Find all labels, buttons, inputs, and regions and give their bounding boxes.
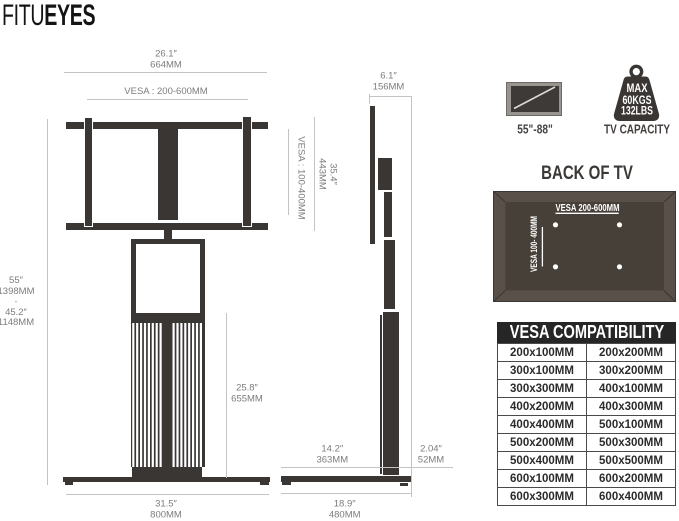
- svg-text:132LBS: 132LBS: [621, 106, 653, 118]
- svg-text:MAX: MAX: [627, 83, 648, 95]
- svg-text:VESA 200-600MM: VESA 200-600MM: [556, 203, 620, 214]
- svg-text:VESA 100- 400MM: VESA 100- 400MM: [529, 216, 539, 272]
